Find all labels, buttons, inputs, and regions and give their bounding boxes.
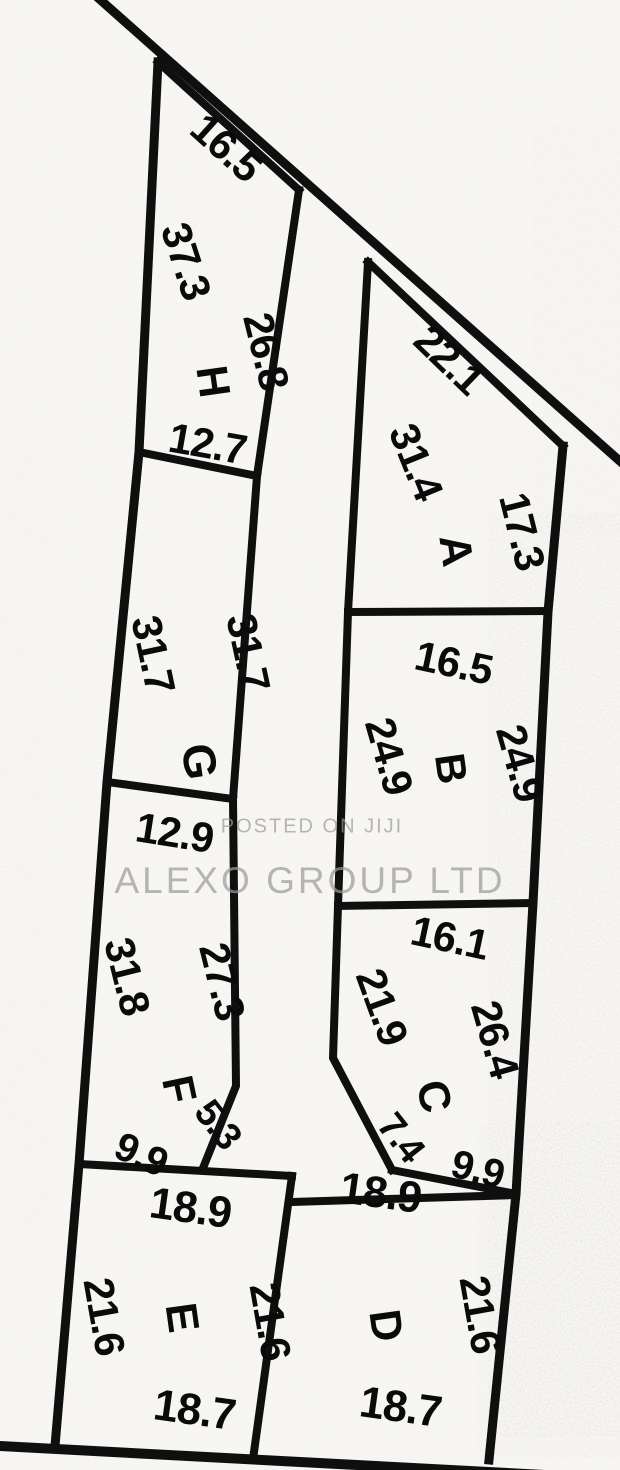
- survey-plan-scan: POSTED ON JIJI ALEXO GROUP LTD 16.5 37.3…: [0, 0, 620, 1470]
- plot-B-C-divider: [338, 903, 533, 906]
- plot-H-letter: H: [186, 362, 239, 400]
- plot-B-letter: B: [426, 750, 477, 787]
- watermark-posted-on: POSTED ON JIJI: [221, 815, 403, 837]
- plot-A-B-divider: [348, 611, 548, 612]
- plot-A-letter: A: [429, 531, 482, 569]
- scan-noise-left-edge: [0, 520, 45, 1160]
- plot-G-letter: G: [172, 740, 228, 783]
- survey-plan-svg: POSTED ON JIJI ALEXO GROUP LTD 16.5 37.3…: [0, 0, 620, 1470]
- watermark-company: ALEXO GROUP LTD: [114, 860, 505, 901]
- plot-D-letter: D: [359, 1306, 412, 1344]
